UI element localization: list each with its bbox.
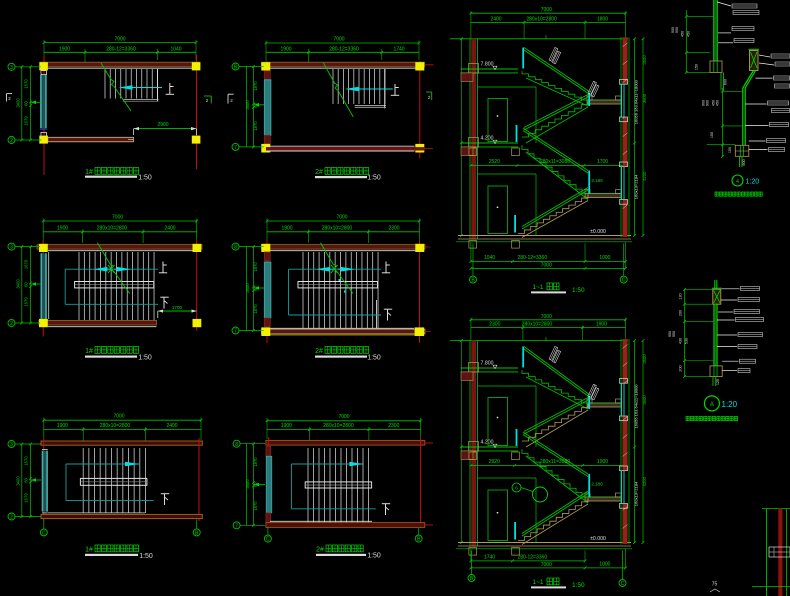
svg-text:1:50: 1:50 [139, 553, 153, 560]
svg-text:120: 120 [679, 293, 683, 299]
svg-text:7: 7 [234, 329, 237, 335]
svg-text:C: C [621, 581, 625, 587]
svg-text:600: 600 [742, 159, 746, 165]
svg-text:1000: 1000 [599, 562, 610, 568]
svg-text:1:50: 1:50 [138, 175, 152, 182]
svg-text:1:50: 1:50 [572, 582, 585, 589]
svg-text:3600: 3600 [245, 283, 250, 293]
svg-text:2.186: 2.186 [591, 482, 603, 487]
svg-text:7000: 7000 [336, 215, 347, 221]
svg-text:2: 2 [10, 138, 13, 144]
svg-text:2900: 2900 [157, 122, 168, 128]
svg-text:C: C [266, 537, 270, 543]
svg-text:280-12=3360: 280-12=3360 [329, 46, 359, 52]
svg-text:4: 4 [736, 179, 739, 185]
svg-text:900: 900 [706, 100, 710, 106]
svg-text:60: 60 [24, 477, 29, 482]
svg-text:1740: 1740 [393, 46, 404, 52]
svg-text:7: 7 [234, 145, 237, 151]
svg-text:280x10=2800: 280x10=2800 [522, 322, 553, 328]
svg-text:2#: 2# [316, 547, 324, 554]
svg-text:1900: 1900 [280, 46, 291, 52]
svg-text:7000: 7000 [541, 314, 552, 320]
svg-text:7000: 7000 [112, 215, 123, 221]
svg-text:C: C [622, 278, 626, 284]
svg-text:430: 430 [679, 338, 683, 344]
svg-text:280-12=3360: 280-12=3360 [106, 46, 136, 52]
svg-text:1900: 1900 [597, 459, 608, 465]
svg-text:60: 60 [24, 101, 29, 106]
svg-text:160x13=2184: 160x13=2184 [634, 481, 639, 506]
svg-text:7000: 7000 [333, 37, 344, 43]
svg-text:280x10=2800: 280x10=2800 [97, 226, 128, 232]
svg-text:1:50: 1:50 [572, 287, 585, 294]
svg-text:1870: 1870 [253, 304, 258, 314]
svg-text:280x11=3080: 280x11=3080 [540, 459, 570, 465]
svg-text:±0.000: ±0.000 [590, 536, 606, 542]
svg-text:1800: 1800 [597, 17, 608, 23]
svg-text:7000: 7000 [338, 414, 349, 420]
svg-text:2400: 2400 [166, 423, 177, 429]
svg-text:C: C [42, 531, 46, 537]
svg-text:2300: 2300 [489, 322, 500, 328]
svg-text:3600: 3600 [642, 395, 647, 405]
svg-text:2: 2 [10, 515, 13, 521]
svg-text:1000: 1000 [599, 255, 610, 261]
svg-text:1679: 1679 [24, 297, 29, 307]
svg-text:1870: 1870 [253, 457, 258, 467]
svg-text:1040: 1040 [484, 255, 495, 261]
svg-text:1:50: 1:50 [367, 175, 381, 182]
svg-text:2300: 2300 [388, 226, 399, 232]
svg-text:280x10=2800: 280x10=2800 [323, 423, 354, 429]
svg-text:1670: 1670 [24, 259, 29, 269]
svg-text:3: 3 [10, 65, 13, 71]
svg-text:200: 200 [679, 365, 683, 371]
svg-text:8: 8 [234, 245, 237, 251]
svg-text:280x11=3080: 280x11=3080 [540, 159, 570, 165]
svg-text:900: 900 [675, 27, 679, 33]
svg-text:1:20: 1:20 [746, 179, 760, 186]
svg-text:1700: 1700 [172, 305, 183, 310]
svg-text:3400: 3400 [16, 279, 21, 289]
svg-text:450: 450 [716, 100, 720, 106]
svg-text:150: 150 [695, 64, 699, 70]
svg-text:1679: 1679 [24, 116, 29, 126]
svg-text:1900: 1900 [57, 423, 68, 429]
svg-text:7: 7 [235, 523, 238, 529]
svg-text:600: 600 [724, 79, 728, 85]
svg-text:75: 75 [712, 582, 718, 588]
svg-text:2920: 2920 [489, 459, 500, 465]
svg-text:60: 60 [24, 282, 29, 287]
svg-text:125: 125 [716, 379, 720, 385]
svg-text:2400: 2400 [164, 226, 175, 232]
svg-text:1700: 1700 [597, 159, 608, 165]
svg-text:1870: 1870 [253, 262, 258, 272]
svg-text:150: 150 [710, 132, 714, 138]
svg-text:3600: 3600 [642, 93, 647, 103]
svg-text:7000: 7000 [541, 562, 552, 568]
svg-text:1#: 1# [85, 169, 93, 176]
svg-text:2300: 2300 [388, 423, 399, 429]
svg-text:3600: 3600 [245, 100, 250, 110]
svg-text:1870: 1870 [253, 121, 258, 131]
svg-text:±0.000: ±0.000 [590, 229, 606, 235]
svg-text:2400: 2400 [490, 17, 501, 23]
svg-text:1870: 1870 [253, 501, 258, 511]
svg-text:1740: 1740 [484, 555, 495, 561]
svg-text:1:20: 1:20 [722, 400, 738, 409]
svg-text:1:50: 1:50 [138, 355, 152, 362]
svg-text:1900: 1900 [281, 423, 292, 429]
svg-text:4200: 4200 [642, 476, 647, 486]
svg-text:1:50: 1:50 [367, 355, 381, 362]
svg-text:7000: 7000 [541, 262, 552, 268]
svg-text:1:50: 1:50 [367, 553, 381, 560]
svg-text:200: 200 [679, 310, 683, 316]
svg-text:280-12=3360: 280-12=3360 [517, 555, 547, 561]
svg-text:2520: 2520 [489, 159, 500, 165]
svg-text:150: 150 [728, 147, 732, 153]
svg-text:3400: 3400 [16, 476, 21, 486]
svg-text:2600: 2600 [642, 354, 647, 364]
svg-text:1~1: 1~1 [532, 579, 543, 586]
svg-text:A: A [710, 402, 714, 408]
svg-text:1670: 1670 [24, 79, 29, 89]
svg-text:3400: 3400 [16, 98, 21, 108]
svg-text:1040: 1040 [170, 46, 181, 52]
svg-text:1870: 1870 [253, 81, 258, 91]
svg-text:7.800: 7.800 [481, 361, 494, 367]
svg-text:280x10=2800: 280x10=2800 [100, 423, 131, 429]
svg-text:450: 450 [687, 31, 691, 37]
svg-text:2: 2 [10, 321, 13, 327]
svg-text:1679: 1679 [24, 493, 29, 503]
svg-text:8: 8 [235, 442, 238, 448]
svg-text:1#: 1# [85, 547, 93, 554]
svg-text:2#: 2# [315, 169, 323, 176]
svg-text:3600: 3600 [245, 479, 250, 489]
svg-text:280x10=2800: 280x10=2800 [526, 17, 557, 23]
svg-text:1900: 1900 [596, 322, 607, 328]
svg-text:4.200: 4.200 [481, 440, 494, 446]
svg-text:280x10=2800: 280x10=2800 [322, 226, 353, 232]
svg-text:4200: 4200 [642, 171, 647, 181]
svg-text:530: 530 [685, 338, 689, 344]
svg-text:1900: 1900 [281, 226, 292, 232]
svg-text:1670: 1670 [24, 456, 29, 466]
svg-text:7000: 7000 [113, 414, 124, 420]
svg-text:950: 950 [672, 331, 676, 337]
svg-text:1~1: 1~1 [532, 284, 543, 291]
svg-text:4.200: 4.200 [481, 136, 494, 142]
svg-text:2#: 2# [315, 348, 323, 355]
svg-text:16056 163.64x11=18000: 16056 163.64x11=18000 [634, 79, 639, 124]
svg-text:2600: 2600 [642, 55, 647, 65]
svg-text:160x13=2184: 160x13=2184 [634, 174, 639, 199]
svg-text:1#: 1# [85, 348, 93, 355]
svg-text:1900: 1900 [59, 46, 70, 52]
svg-text:3: 3 [10, 245, 13, 251]
svg-text:16056 163.64x11=18000: 16056 163.64x11=18000 [634, 384, 639, 429]
svg-text:3.186: 3.186 [591, 178, 603, 183]
svg-text:7000: 7000 [114, 37, 125, 43]
svg-text:7000: 7000 [541, 7, 552, 13]
svg-text:7.800: 7.800 [481, 62, 494, 68]
svg-text:450: 450 [681, 31, 685, 37]
svg-text:3: 3 [10, 442, 13, 448]
svg-text:280-12=3360: 280-12=3360 [517, 255, 547, 261]
svg-text:1900: 1900 [57, 226, 68, 232]
